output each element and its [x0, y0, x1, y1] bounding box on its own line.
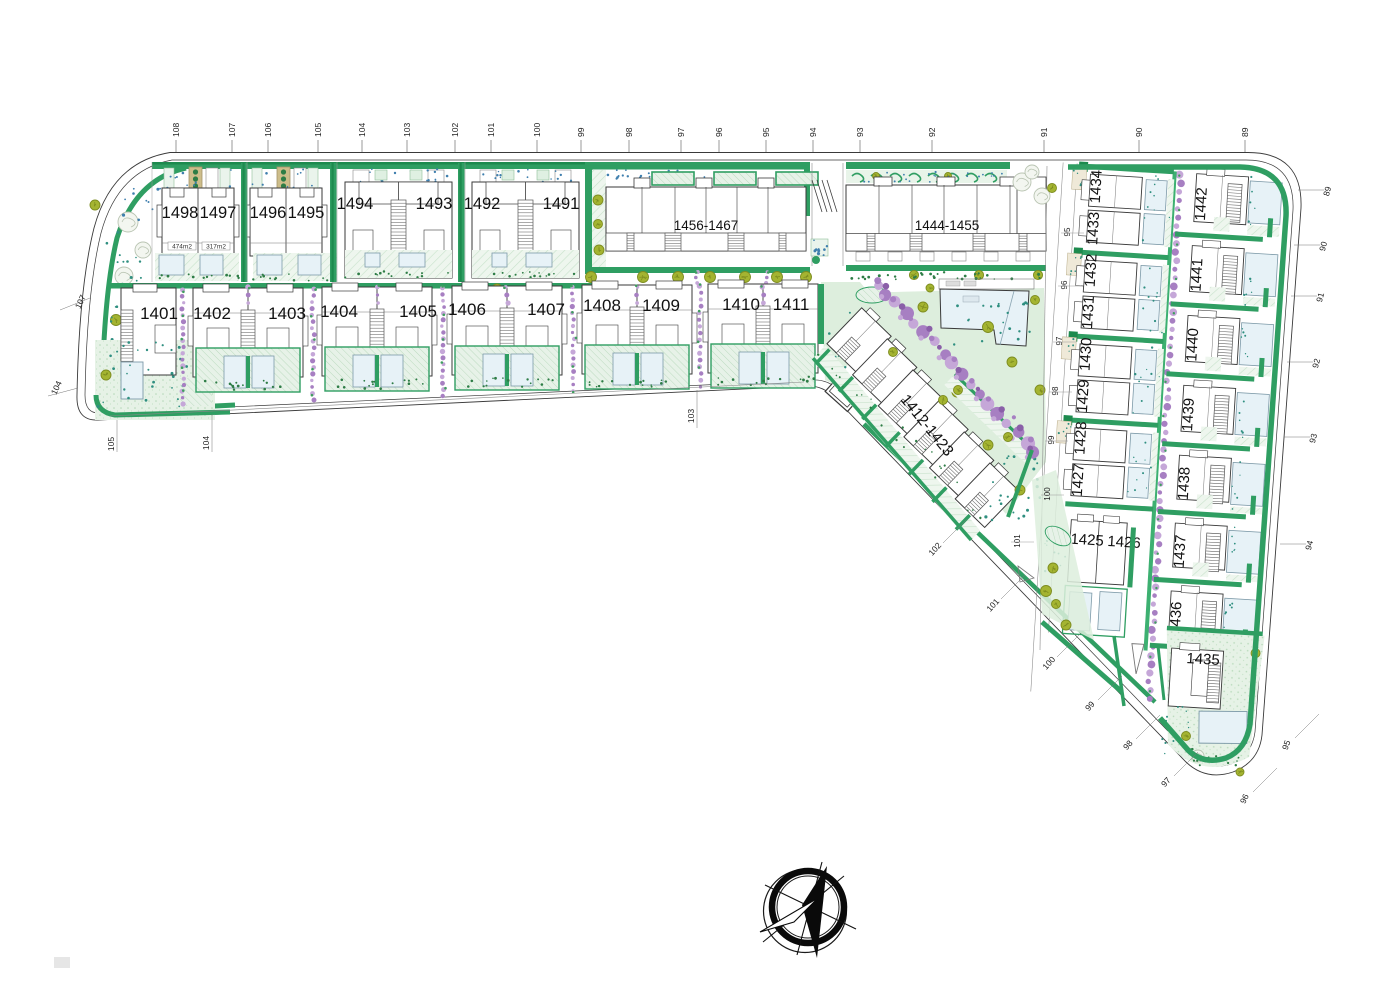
svg-text:1411: 1411 — [773, 295, 810, 314]
svg-text:1496: 1496 — [250, 204, 287, 222]
svg-text:107: 107 — [227, 123, 237, 137]
svg-text:1435: 1435 — [1186, 650, 1220, 669]
svg-text:1431: 1431 — [1079, 295, 1098, 329]
svg-text:1426: 1426 — [1107, 533, 1141, 552]
svg-text:106: 106 — [263, 123, 273, 137]
svg-text:101: 101 — [1013, 534, 1022, 548]
svg-text:97: 97 — [676, 127, 686, 137]
svg-text:90: 90 — [1134, 127, 1144, 137]
svg-text:101: 101 — [486, 123, 496, 137]
svg-text:1492: 1492 — [464, 195, 501, 213]
svg-text:108: 108 — [171, 123, 181, 137]
svg-text:100: 100 — [532, 123, 542, 137]
svg-text:95: 95 — [1063, 227, 1072, 236]
svg-text:1428: 1428 — [1071, 421, 1090, 455]
svg-text:94: 94 — [808, 127, 818, 137]
svg-text:100: 100 — [1043, 487, 1052, 501]
svg-text:91: 91 — [1039, 127, 1049, 137]
svg-text:99: 99 — [1047, 435, 1056, 444]
svg-text:1493: 1493 — [416, 195, 453, 213]
svg-text:103: 103 — [402, 123, 412, 137]
svg-text:1410: 1410 — [722, 295, 760, 314]
svg-text:1401: 1401 — [140, 304, 178, 323]
svg-text:1434: 1434 — [1087, 169, 1106, 203]
svg-text:99: 99 — [576, 127, 586, 137]
svg-text:1425: 1425 — [1070, 531, 1104, 550]
svg-text:1430: 1430 — [1076, 337, 1095, 371]
svg-text:96: 96 — [1060, 280, 1069, 289]
svg-text:1404: 1404 — [320, 302, 358, 321]
svg-text:1432: 1432 — [1082, 253, 1101, 287]
svg-text:1402: 1402 — [193, 304, 231, 323]
svg-text:98: 98 — [624, 127, 634, 137]
svg-text:93: 93 — [855, 127, 865, 137]
svg-text:1441: 1441 — [1188, 258, 1207, 292]
svg-text:1403: 1403 — [268, 304, 306, 323]
svg-text:1442: 1442 — [1192, 187, 1211, 221]
svg-text:105: 105 — [313, 123, 323, 137]
svg-text:1433: 1433 — [1084, 211, 1103, 245]
svg-text:1491: 1491 — [543, 195, 580, 213]
svg-text:1407: 1407 — [527, 300, 565, 319]
svg-text:1427: 1427 — [1069, 463, 1088, 497]
svg-text:1494: 1494 — [337, 195, 374, 213]
svg-text:1429: 1429 — [1074, 379, 1093, 413]
svg-text:1456-1467: 1456-1467 — [674, 218, 739, 233]
svg-text:317m2: 317m2 — [206, 244, 226, 251]
svg-text:1437: 1437 — [1171, 534, 1190, 568]
svg-text:92: 92 — [927, 127, 937, 137]
svg-text:96: 96 — [714, 127, 724, 137]
svg-text:1495: 1495 — [288, 204, 325, 222]
svg-text:1440: 1440 — [1183, 328, 1202, 362]
svg-text:97: 97 — [1055, 336, 1064, 345]
svg-text:104: 104 — [357, 123, 367, 137]
svg-text:1406: 1406 — [448, 300, 486, 319]
svg-text:1405: 1405 — [399, 302, 437, 321]
svg-text:1498: 1498 — [162, 204, 199, 222]
svg-text:1409: 1409 — [642, 296, 680, 315]
svg-text:105: 105 — [106, 437, 116, 451]
svg-text:1444-1455: 1444-1455 — [915, 218, 980, 233]
svg-text:103: 103 — [686, 409, 696, 423]
svg-text:98: 98 — [1051, 386, 1060, 395]
svg-text:104: 104 — [201, 436, 211, 450]
svg-text:1408: 1408 — [583, 296, 621, 315]
svg-text:474m2: 474m2 — [172, 244, 192, 251]
svg-text:1438: 1438 — [1175, 466, 1194, 500]
svg-text:95: 95 — [761, 127, 771, 137]
svg-text:1497: 1497 — [200, 204, 237, 222]
svg-text:89: 89 — [1240, 127, 1250, 137]
svg-text:1439: 1439 — [1179, 397, 1198, 431]
svg-text:102: 102 — [450, 123, 460, 137]
